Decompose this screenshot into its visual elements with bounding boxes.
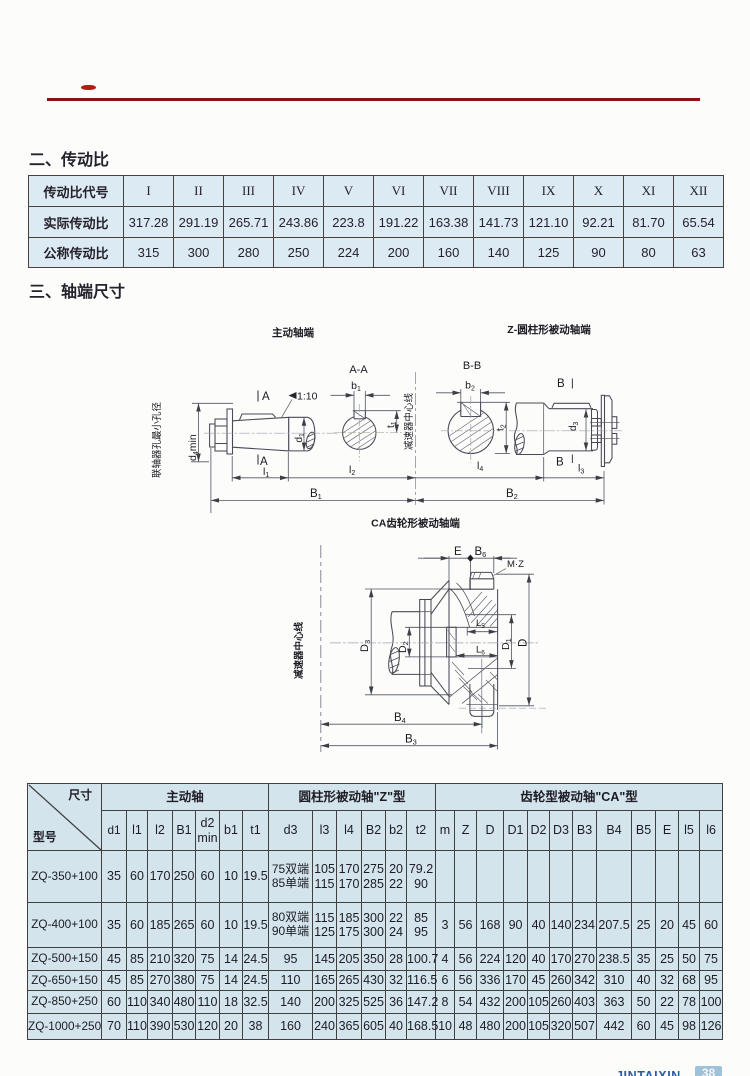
svg-text:B3: B3 <box>405 734 417 747</box>
svg-text:b2: b2 <box>465 380 475 393</box>
svg-text:1:10: 1:10 <box>297 391 318 403</box>
svg-text:D1: D1 <box>500 638 513 650</box>
svg-text:B1: B1 <box>310 488 322 501</box>
svg-text:l2: l2 <box>349 464 355 477</box>
svg-text:t1: t1 <box>386 421 398 428</box>
svg-text:A: A <box>262 391 270 403</box>
svg-text:减速器中心线: 减速器中心线 <box>403 392 415 450</box>
svg-text:D: D <box>518 639 530 647</box>
svg-text:B6: B6 <box>475 546 487 559</box>
svg-text:L6: L6 <box>476 645 485 657</box>
svg-text:B: B <box>556 457 564 469</box>
svg-text:L5: L5 <box>476 618 485 630</box>
svg-text:B: B <box>557 378 565 390</box>
svg-text:D3: D3 <box>359 640 372 652</box>
svg-text:b1: b1 <box>351 380 361 393</box>
svg-text:B4: B4 <box>394 712 406 725</box>
svg-text:B2: B2 <box>506 488 518 501</box>
svg-text:A-A: A-A <box>349 364 368 376</box>
svg-text:t2: t2 <box>496 424 508 431</box>
svg-text:主动轴端: 主动轴端 <box>272 326 314 339</box>
svg-text:l4: l4 <box>477 460 483 473</box>
svg-text:Z-圆柱形被动轴端: Z-圆柱形被动轴端 <box>507 323 591 336</box>
svg-text:联轴器孔最小孔径: 联轴器孔最小孔径 <box>151 401 163 478</box>
svg-text:减速器中心线: 减速器中心线 <box>293 621 305 679</box>
svg-text:d3: d3 <box>568 421 580 431</box>
svg-text:d1: d1 <box>294 433 306 443</box>
svg-text:d4min: d4min <box>187 434 200 461</box>
svg-text:l3: l3 <box>578 463 584 476</box>
svg-text:M·Z: M·Z <box>507 559 524 570</box>
svg-text:B-B: B-B <box>463 360 481 372</box>
svg-text:CA齿轮形被动轴端: CA齿轮形被动轴端 <box>371 517 460 530</box>
svg-text:E: E <box>454 546 462 558</box>
